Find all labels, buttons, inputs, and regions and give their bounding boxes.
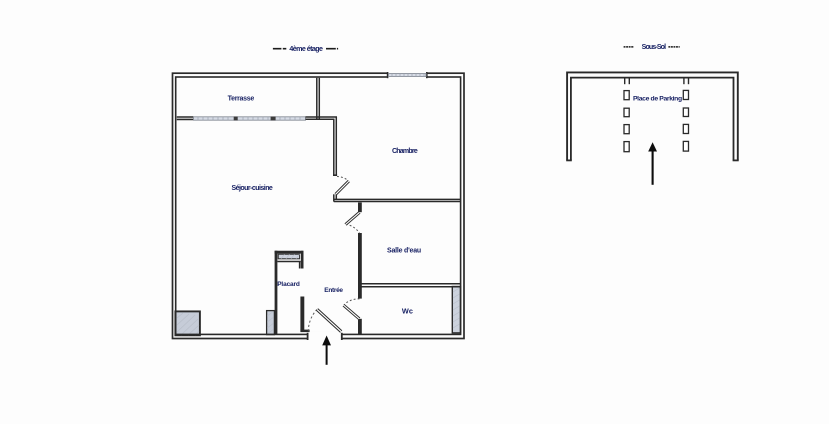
svg-text:Entrée: Entrée [324, 287, 343, 294]
svg-text:4ème étage: 4ème étage [289, 45, 323, 53]
svg-text:Place de Parking: Place de Parking [633, 96, 682, 103]
svg-text:Wc: Wc [402, 306, 413, 315]
svg-text:Chambre: Chambre [392, 148, 418, 155]
svg-text:Séjour-cuisine: Séjour-cuisine [231, 185, 272, 192]
svg-text:Salle d'eau: Salle d'eau [387, 247, 421, 254]
svg-text:Placard: Placard [277, 281, 300, 288]
svg-text:Terrasse: Terrasse [228, 95, 255, 102]
svg-text:Sous-Sol: Sous-Sol [642, 44, 666, 51]
